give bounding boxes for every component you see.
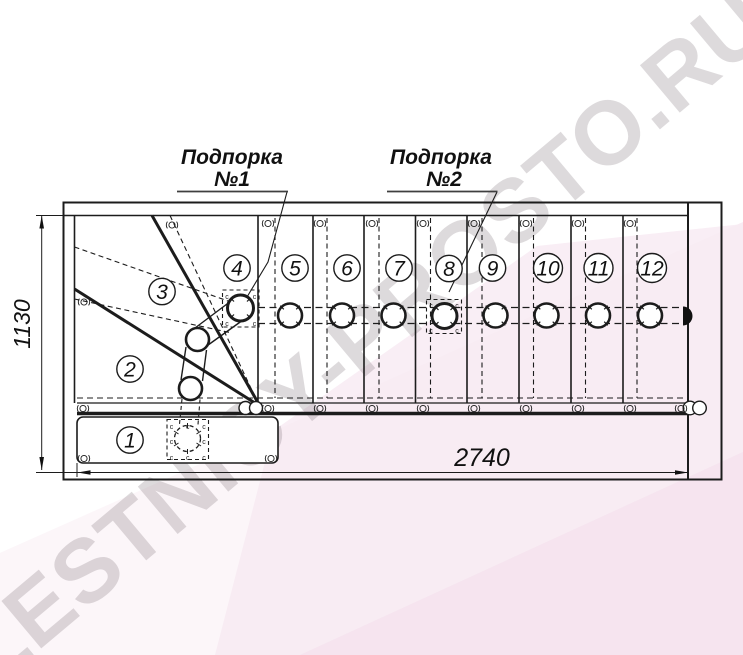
step-number-11: 11	[584, 254, 613, 283]
clamp-ring-upper	[186, 328, 209, 351]
step-number-9: 9	[479, 255, 505, 281]
dimension-length-value: 2740	[453, 444, 510, 472]
step-number-4: 4	[224, 255, 250, 281]
svg-text:6: 6	[341, 258, 353, 281]
label-support2-number: №2	[426, 168, 462, 191]
staircase-plan-drawing: LESTNICY-PROSTO.RU	[0, 0, 743, 655]
svg-text:c: c	[429, 303, 433, 310]
svg-text:c: c	[186, 455, 190, 462]
step-number-7: 7	[386, 255, 412, 281]
label-support1-number: №1	[214, 168, 250, 191]
step-number-1: 1	[117, 427, 143, 453]
arrow-down	[39, 457, 44, 470]
svg-text:1: 1	[124, 430, 136, 453]
step-number-5: 5	[282, 255, 308, 281]
step-number-12: 12	[638, 254, 667, 283]
svg-text:c: c	[170, 455, 174, 462]
svg-text:3: 3	[156, 281, 168, 304]
dimension-height	[36, 216, 63, 471]
svg-text:5: 5	[289, 258, 301, 281]
svg-text:c: c	[170, 439, 174, 446]
stringer-left-cap-2	[250, 402, 263, 415]
arrow-up	[39, 216, 44, 229]
svg-text:12: 12	[640, 258, 664, 281]
svg-text:c: c	[253, 294, 257, 301]
step1-plate	[77, 417, 278, 463]
step-number-10: 10	[534, 254, 563, 283]
svg-text:c: c	[455, 303, 459, 310]
svg-text:c: c	[202, 424, 206, 431]
svg-text:c: c	[225, 294, 229, 301]
svg-text:7: 7	[393, 258, 406, 281]
svg-text:c: c	[202, 439, 206, 446]
svg-text:11: 11	[588, 258, 610, 281]
stringer-right-cap-2	[693, 401, 707, 415]
label-support1-name: Подпорка	[181, 146, 283, 169]
svg-text:4: 4	[231, 258, 243, 281]
svg-text:c: c	[170, 424, 174, 431]
clamp-ring-lower	[179, 377, 202, 400]
dimension-height-value: 1130	[9, 299, 35, 349]
svg-text:2: 2	[123, 359, 136, 382]
svg-text:c: c	[455, 328, 459, 335]
label-support2-name: Подпорка	[390, 146, 492, 169]
step-number-6: 6	[334, 255, 360, 281]
svg-text:10: 10	[536, 258, 560, 281]
svg-text:c: c	[225, 321, 229, 328]
svg-text:9: 9	[487, 258, 499, 281]
arrow-left	[78, 470, 91, 475]
svg-text:8: 8	[443, 258, 455, 281]
svg-text:c: c	[253, 321, 257, 328]
svg-text:c: c	[186, 424, 190, 431]
leader-line-support1	[247, 192, 287, 297]
step-number-2: 2	[117, 356, 143, 382]
svg-text:c: c	[202, 455, 206, 462]
step-number-3: 3	[149, 278, 175, 304]
step-number-8: 8	[436, 255, 462, 281]
svg-text:c: c	[429, 328, 433, 335]
